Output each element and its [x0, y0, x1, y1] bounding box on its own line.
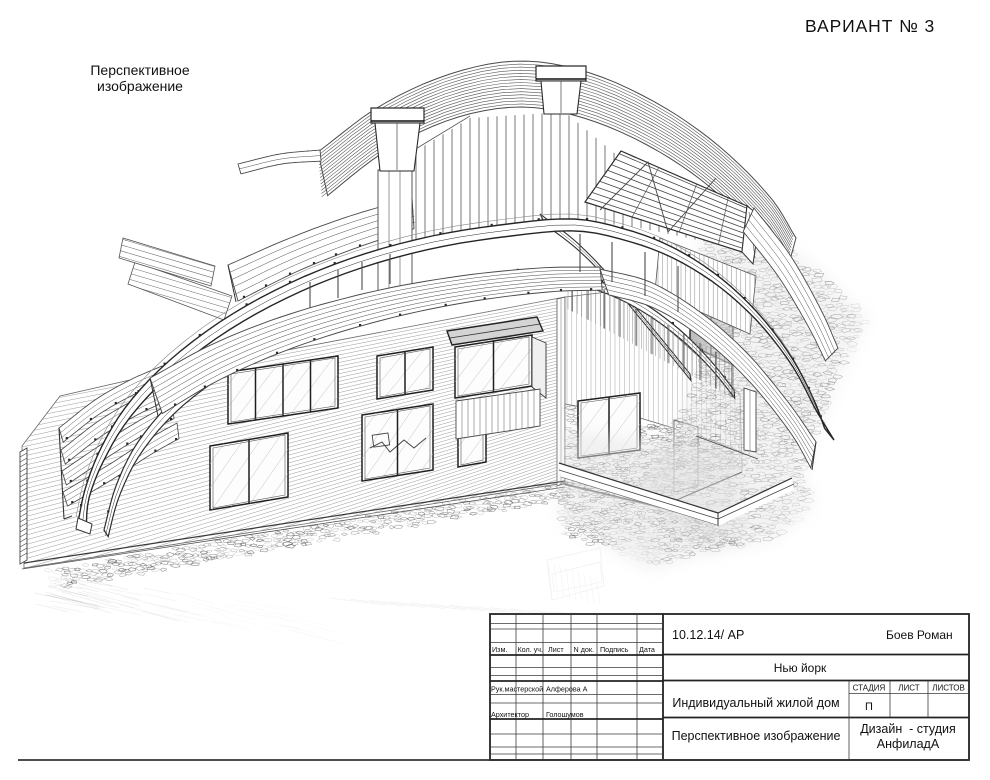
svg-text:10.12.14/ АР: 10.12.14/ АР	[672, 628, 744, 642]
svg-text:ЛИСТ: ЛИСТ	[898, 684, 920, 693]
svg-text:П: П	[865, 701, 873, 713]
svg-text:АнфиладА: АнфиладА	[877, 737, 940, 751]
svg-text:Рук.мастерской: Рук.мастерской	[491, 685, 543, 694]
svg-text:ЛИСТОВ: ЛИСТОВ	[932, 684, 965, 693]
svg-text:Кол. уч.: Кол. уч.	[518, 645, 544, 654]
svg-text:Алферова А: Алферова А	[546, 685, 588, 694]
svg-text:Нью йорк: Нью йорк	[774, 661, 827, 675]
svg-text:Дата: Дата	[639, 645, 655, 654]
svg-text:Боев Роман: Боев Роман	[886, 628, 953, 642]
svg-text:N док.: N док.	[574, 645, 595, 654]
svg-text:Индивидуальный жилой дом: Индивидуальный жилой дом	[672, 696, 839, 710]
svg-text:СТАДИЯ: СТАДИЯ	[853, 684, 886, 693]
svg-text:Подпись: Подпись	[600, 645, 629, 654]
svg-text:Лист: Лист	[548, 645, 564, 654]
svg-text:Перспективное изображение: Перспективное изображение	[672, 729, 841, 743]
svg-text:Перспективное: Перспективное	[90, 62, 189, 78]
svg-text:ВАРИАНТ № 3: ВАРИАНТ № 3	[805, 16, 935, 36]
svg-text:Изм.: Изм.	[492, 645, 507, 654]
svg-text:Архитектор: Архитектор	[491, 710, 529, 719]
svg-text:Дизайн - студия: Дизайн - студия	[860, 722, 956, 736]
svg-text:изображение: изображение	[97, 78, 183, 94]
svg-text:Голошумов: Голошумов	[546, 710, 584, 719]
